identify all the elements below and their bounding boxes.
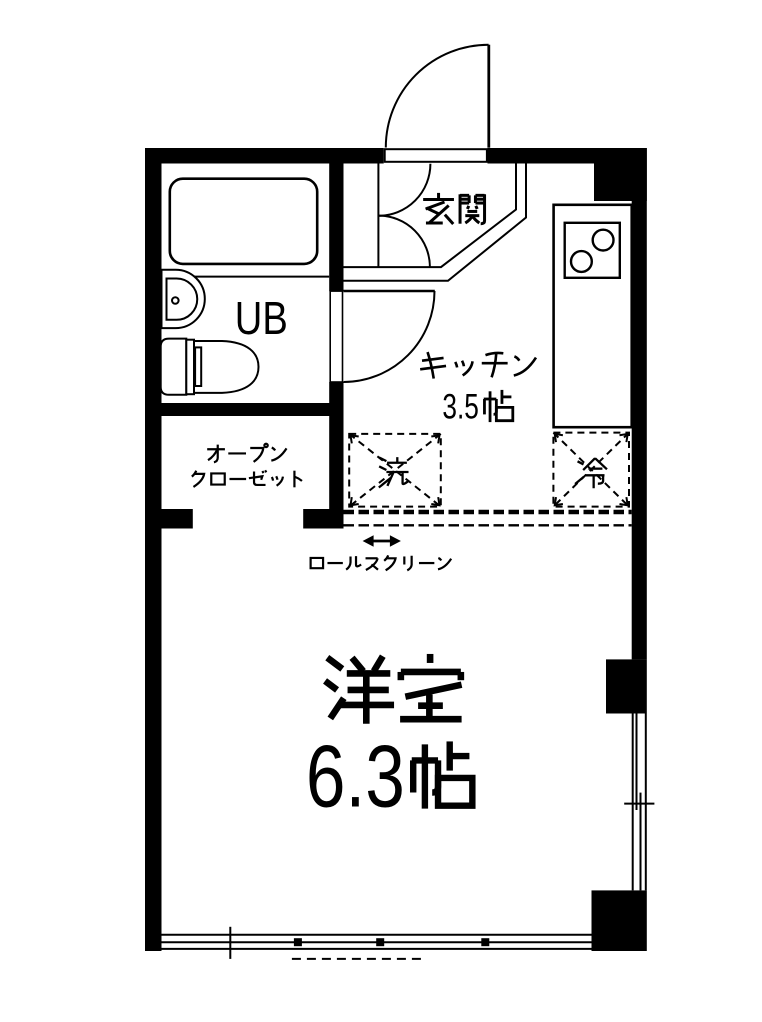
svg-text:UB: UB bbox=[235, 292, 288, 344]
svg-text:6.3: 6.3 bbox=[306, 726, 405, 825]
svg-text:3.5: 3.5 bbox=[442, 388, 479, 427]
